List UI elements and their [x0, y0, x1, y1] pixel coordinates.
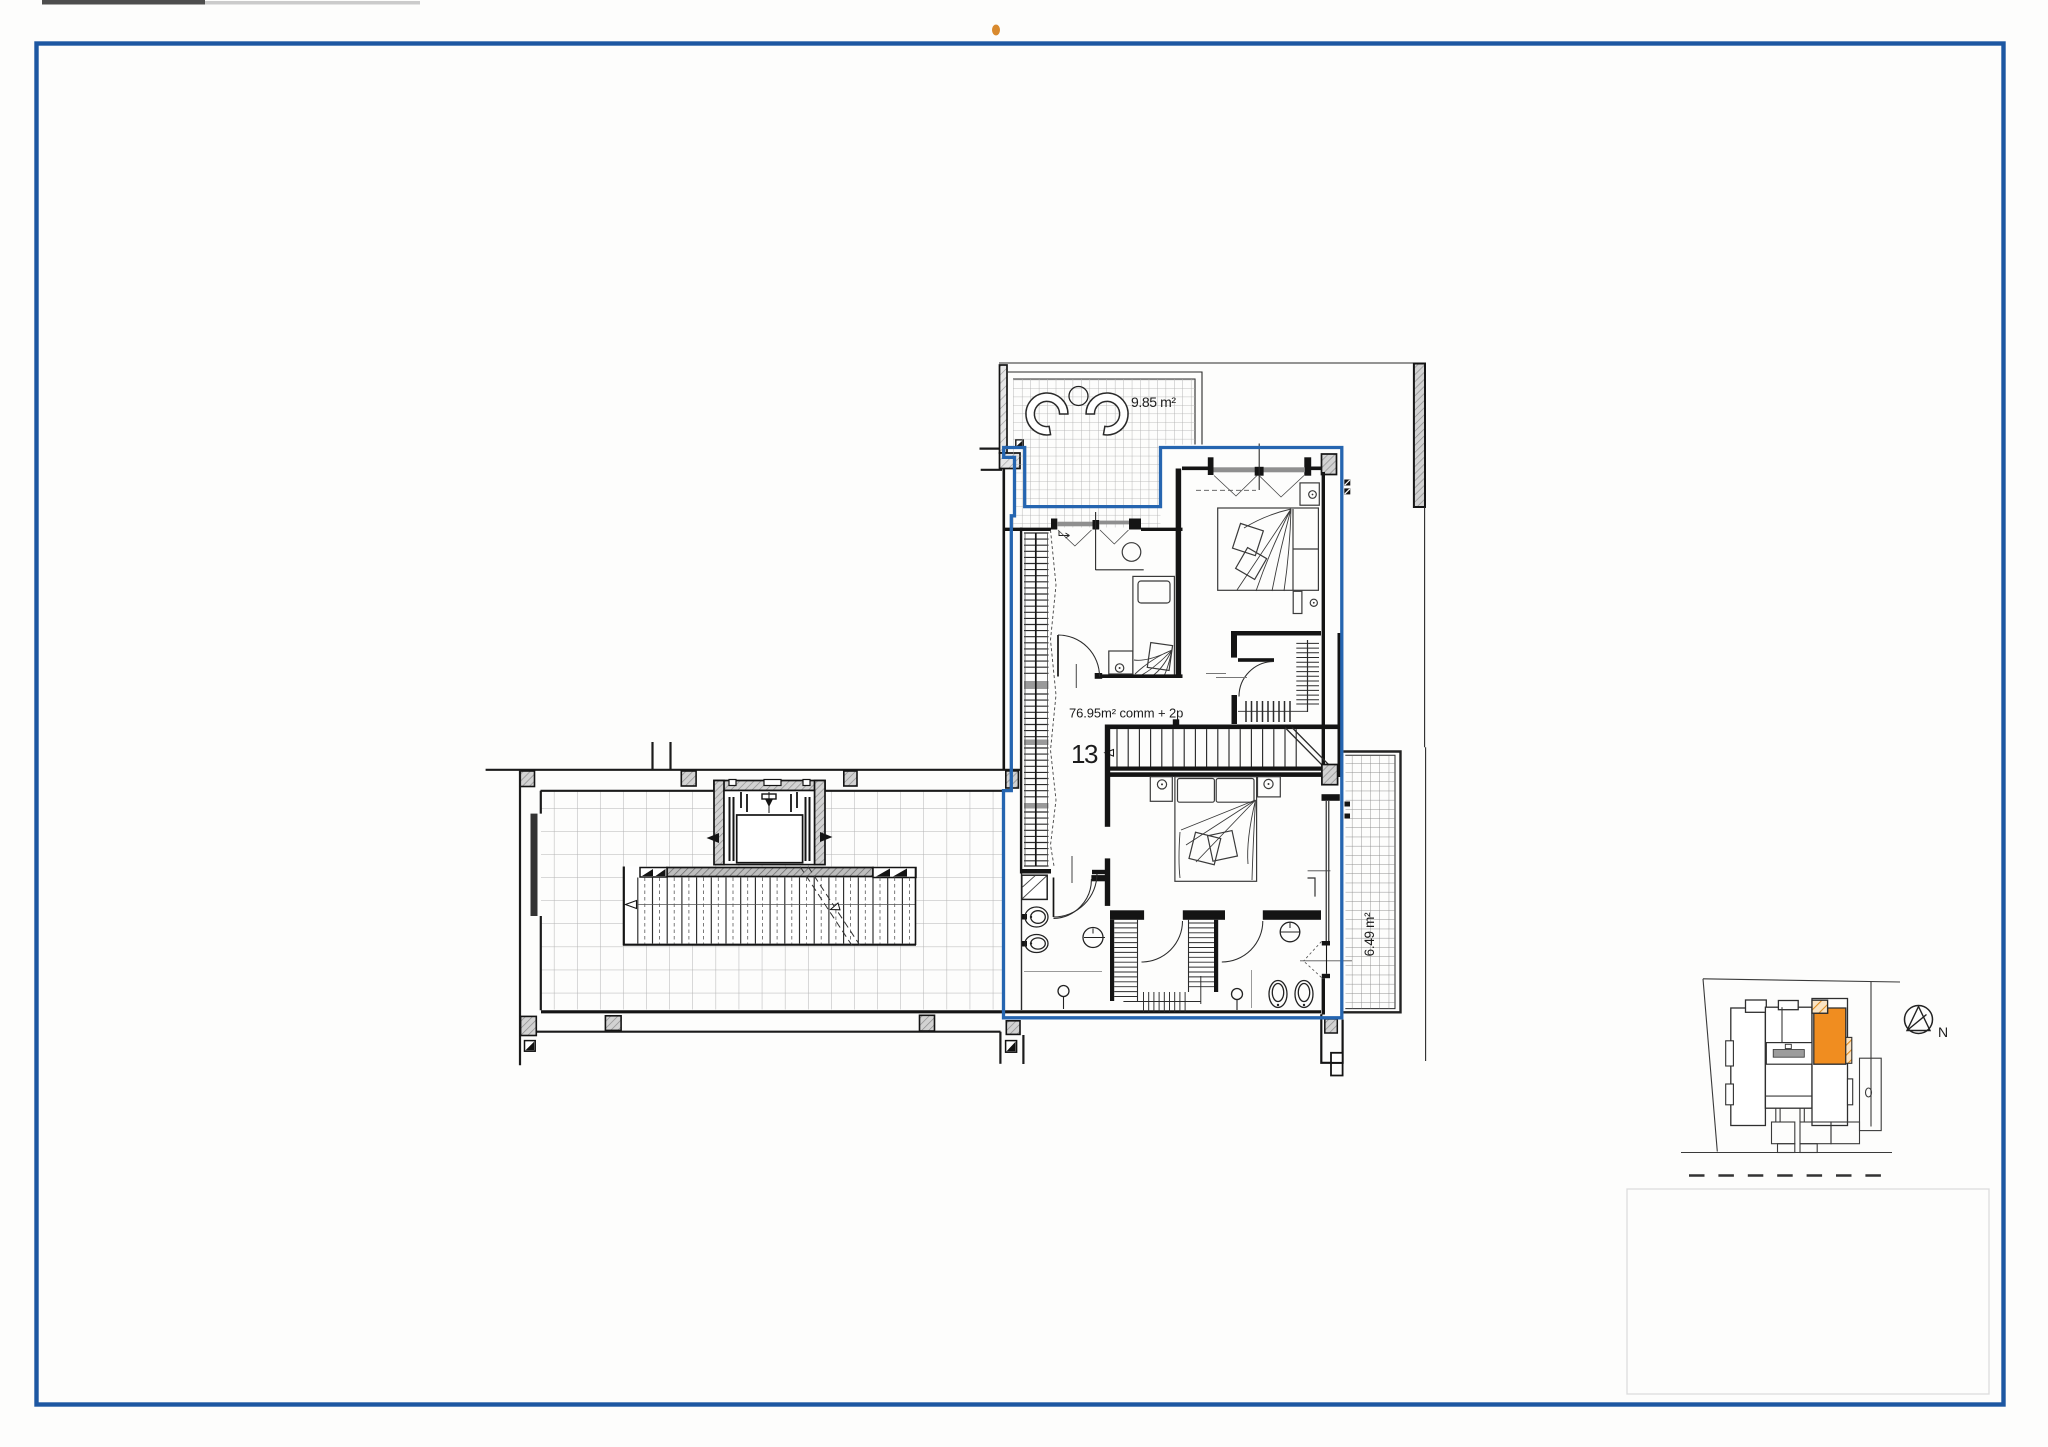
svg-text:9.85 m²: 9.85 m² — [1131, 394, 1176, 410]
svg-text:N: N — [1938, 1024, 1948, 1040]
svg-text:76.95m² comm + 2p: 76.95m² comm + 2p — [1069, 706, 1183, 721]
svg-text:6.49 m²: 6.49 m² — [1362, 912, 1377, 956]
svg-text:13: 13 — [1071, 739, 1098, 769]
